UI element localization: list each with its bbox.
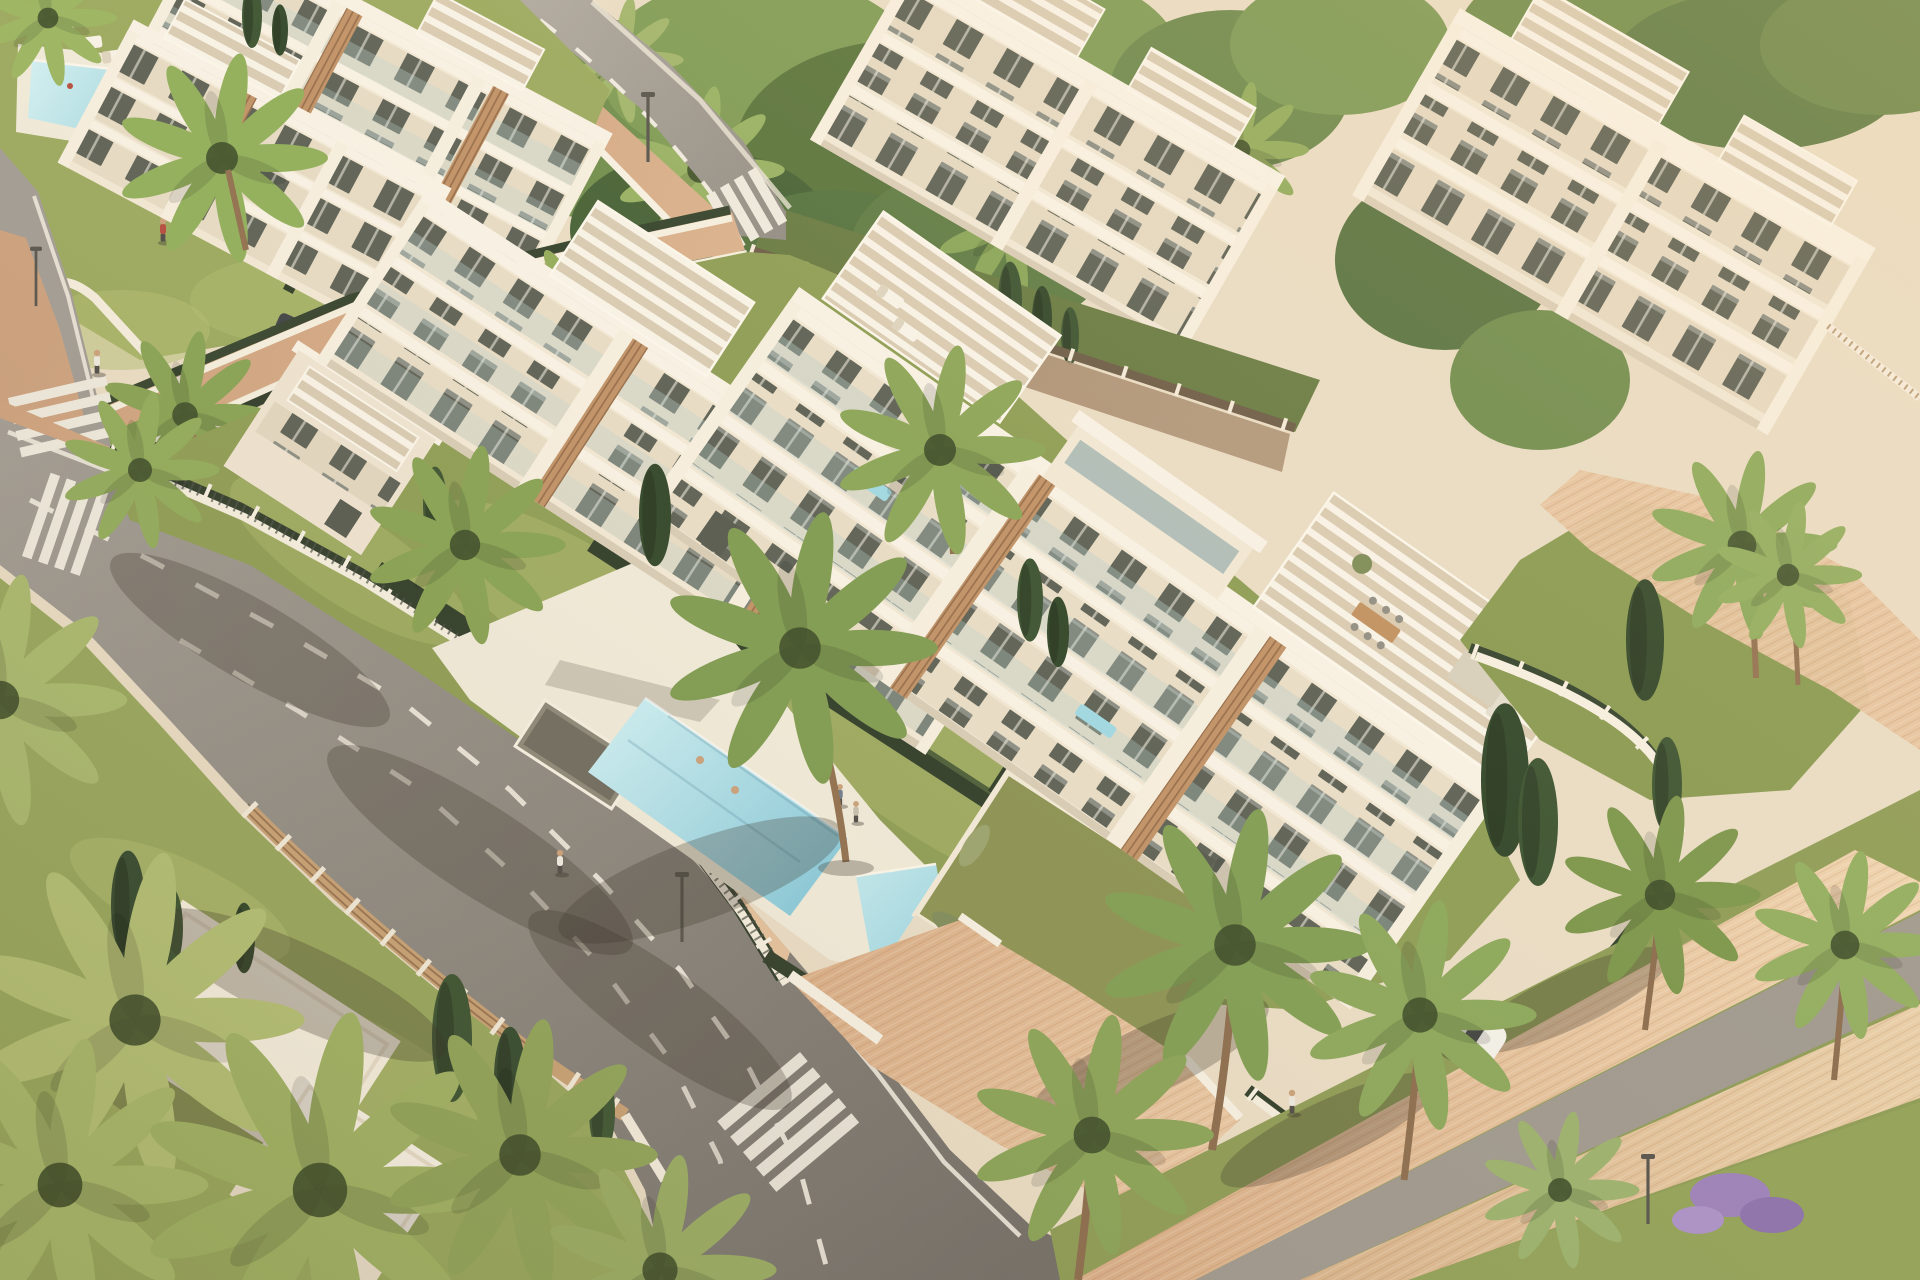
sunlight-overlay [0, 0, 1920, 1280]
aerial-render: Aerial golden-hour 3D render of a modern… [0, 0, 1920, 1280]
scene-root: Aerial golden-hour 3D render of a modern… [0, 0, 1920, 1280]
